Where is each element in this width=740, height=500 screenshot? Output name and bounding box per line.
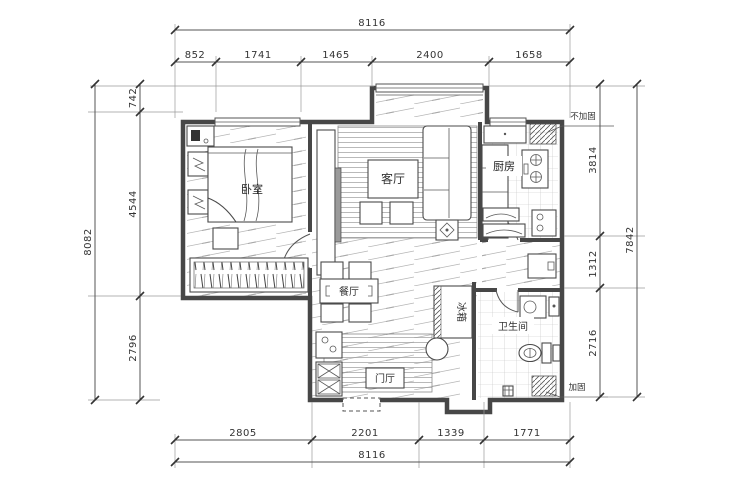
dim-bottom-seg: 2805 (229, 428, 256, 439)
dim-top-seg: 1658 (515, 50, 542, 61)
sill-dot (504, 133, 506, 135)
dish-rack (483, 224, 525, 237)
tv-cabinet (317, 130, 335, 275)
bay-window-floor (376, 90, 483, 120)
dim-top-seg: 2400 (416, 50, 443, 61)
bedroom-dresser (213, 228, 238, 249)
dining-set: 餐厅 (320, 262, 378, 322)
dining-chair (321, 262, 343, 280)
column-dot (553, 305, 556, 308)
room-label-dining: 餐厅 (339, 285, 359, 298)
floor-plan-canvas: 冰箱 餐厅 门厅 (0, 0, 740, 500)
dining-chair (349, 304, 371, 322)
dim-bottom-seg: 2201 (351, 428, 378, 439)
dining-chair (349, 262, 371, 280)
tv-icon (335, 168, 341, 242)
coffee-table (360, 202, 382, 224)
nightstand (188, 190, 208, 214)
dim-bottom-seg: 1339 (437, 428, 464, 439)
dim-right-total: 7842 (625, 226, 636, 253)
dish-rack (483, 208, 519, 221)
fridge-unit: 冰箱 (434, 286, 472, 338)
fridge-hatch-edge (434, 286, 441, 338)
wardrobe-hanging-clothes (194, 262, 304, 288)
kitchen-sink (532, 210, 556, 236)
dim-top-seg: 1741 (244, 50, 271, 61)
floor-drain (503, 386, 513, 396)
no-reinforce-hatch-corner (530, 124, 556, 144)
dim-left-seg: 4544 (128, 190, 139, 217)
dim-left-total: 8082 (83, 228, 94, 255)
shoe-cabinet (316, 362, 342, 396)
paper-holder (553, 345, 560, 361)
water-heater (528, 254, 556, 278)
note-reinforce: 加固 (568, 382, 585, 393)
dim-bottom-seg: 1771 (513, 428, 540, 439)
entry-door-opening (343, 398, 380, 411)
sofa (423, 126, 471, 220)
note-no-reinforce: 不加固 (570, 111, 596, 122)
dim-left-seg: 2796 (128, 334, 139, 361)
room-label-bedroom: 卧室 (241, 182, 263, 196)
floor-plan-svg: 冰箱 餐厅 门厅 (0, 0, 740, 500)
room-label-fridge: 冰箱 (455, 302, 468, 322)
dim-left-seg: 742 (128, 88, 139, 109)
dim-right-seg: 3814 (588, 146, 599, 173)
nightstand (188, 152, 208, 176)
dim-top-total: 8116 (358, 18, 385, 29)
dim-top-seg: 1465 (322, 50, 349, 61)
room-label-foyer: 门厅 (375, 372, 395, 385)
reinforce-hatch-corner (532, 376, 556, 396)
dim-right-seg: 2716 (588, 329, 599, 356)
coffee-table (390, 202, 413, 224)
dim-top-seg: 852 (185, 50, 206, 61)
dining-chair (321, 304, 343, 322)
round-table (426, 338, 448, 360)
shoe-bench (316, 332, 342, 358)
room-label-living: 客厅 (381, 171, 405, 186)
room-label-bathroom: 卫生间 (498, 320, 528, 333)
decor-dot (446, 229, 449, 232)
room-label-kitchen: 厨房 (493, 160, 515, 173)
dim-bottom-total: 8116 (358, 450, 385, 461)
dim-right-seg: 1312 (588, 250, 599, 277)
toilet-tank (542, 343, 551, 363)
appliance-icon (191, 130, 200, 141)
